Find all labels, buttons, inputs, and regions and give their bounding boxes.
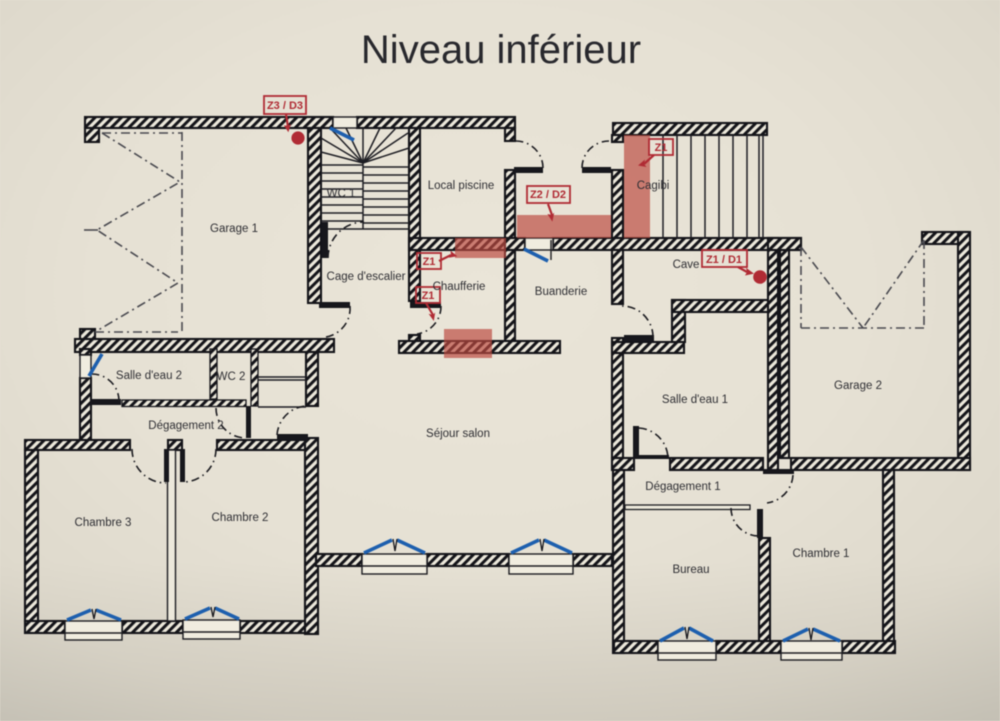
svg-text:Z2 / D2: Z2 / D2 bbox=[530, 189, 566, 201]
svg-text:Garage 1: Garage 1 bbox=[210, 223, 258, 235]
svg-text:Chambre 3: Chambre 3 bbox=[75, 517, 132, 529]
svg-text:Cave: Cave bbox=[673, 259, 700, 271]
svg-text:Séjour salon: Séjour salon bbox=[426, 428, 490, 440]
svg-text:Buanderie: Buanderie bbox=[535, 286, 587, 298]
svg-text:Garage 2: Garage 2 bbox=[834, 380, 882, 392]
svg-text:Salle d'eau 2: Salle d'eau 2 bbox=[116, 370, 182, 382]
svg-text:Chaufferie: Chaufferie bbox=[433, 281, 486, 293]
svg-text:Salle d'eau 1: Salle d'eau 1 bbox=[662, 394, 728, 406]
svg-text:Z3 / D3: Z3 / D3 bbox=[267, 100, 303, 112]
svg-text:Cage d'escalier: Cage d'escalier bbox=[327, 271, 406, 283]
svg-text:WC 1: WC 1 bbox=[327, 188, 356, 200]
svg-text:WC 2: WC 2 bbox=[217, 371, 246, 383]
svg-text:Dégagement 1: Dégagement 1 bbox=[645, 481, 720, 493]
svg-text:Z1: Z1 bbox=[423, 256, 436, 268]
svg-text:Z1 / D1: Z1 / D1 bbox=[706, 254, 742, 266]
svg-text:Dégagement 2: Dégagement 2 bbox=[148, 420, 223, 432]
svg-text:Cagibi: Cagibi bbox=[637, 180, 670, 192]
svg-text:Z1: Z1 bbox=[655, 142, 668, 154]
svg-text:Local piscine: Local piscine bbox=[428, 180, 494, 192]
svg-text:Chambre 2: Chambre 2 bbox=[212, 512, 269, 524]
svg-text:Chambre 1: Chambre 1 bbox=[793, 548, 850, 560]
svg-text:Niveau inférieur: Niveau inférieur bbox=[361, 28, 641, 72]
svg-text:Bureau: Bureau bbox=[672, 564, 709, 576]
